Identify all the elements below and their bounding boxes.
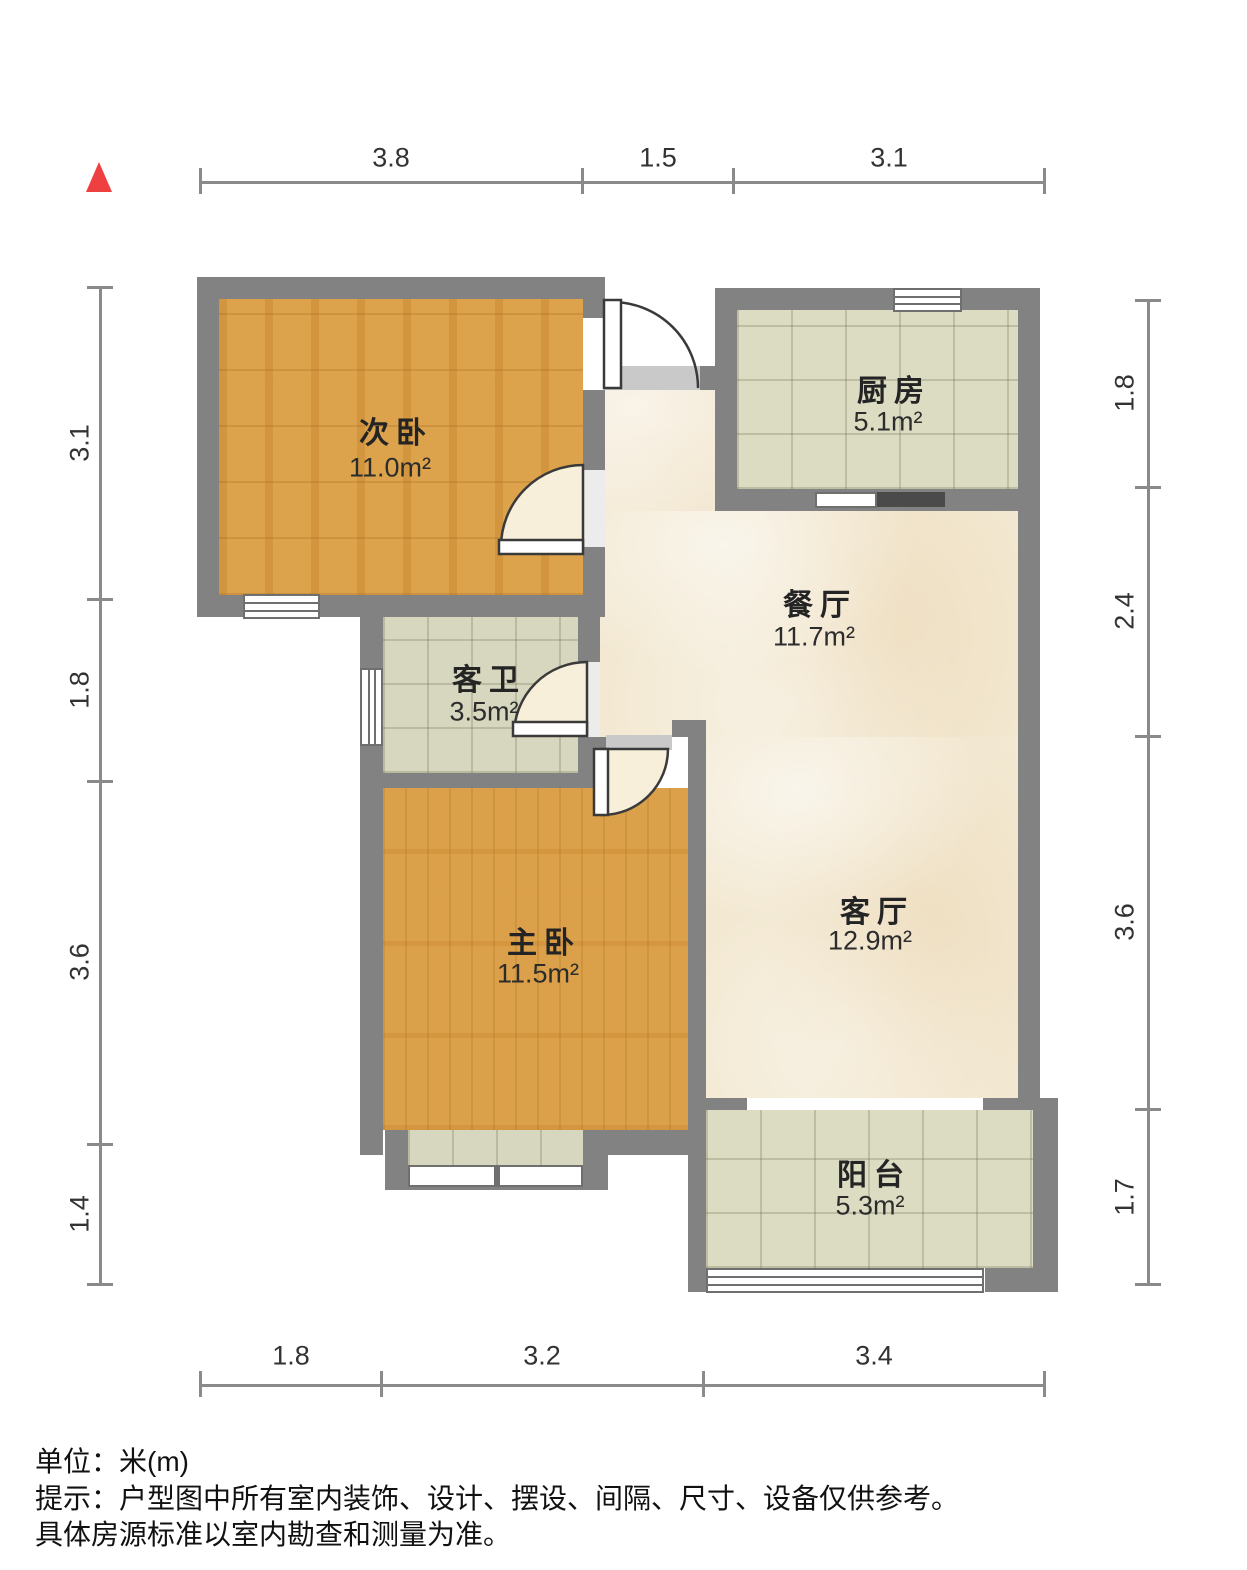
dim-tick [732,168,735,194]
master-bedroom-bay-window [408,1165,583,1187]
wall [583,1130,608,1190]
doorway-bathroom [578,662,600,737]
dim-tick [1135,299,1161,302]
footer-tip-line1: 提示：户型图中所有室内装饰、设计、摆设、间隔、尺寸、设备仅供参考。 [35,1477,959,1517]
room-label-dining: 餐厅 [783,580,857,624]
footer-unit-label: 单位：米(m) [35,1440,189,1480]
secondary-bedroom-window [243,594,320,619]
dim-tick [1135,1283,1161,1286]
dim-label: 3.6 [1110,903,1141,941]
bathroom-window [360,668,383,746]
wall [985,1268,1033,1292]
wall [583,277,605,318]
room-area-master-bedroom: 11.5m² [497,959,579,990]
dim-tick [199,168,202,194]
dim-label: 3.2 [523,1341,561,1372]
door-swings [0,0,1247,1570]
wall [672,720,706,737]
dim-label: 2.4 [1110,592,1141,630]
wall [578,595,600,662]
wall [583,390,605,472]
wall [606,1130,688,1155]
dim-label: 3.6 [65,943,96,981]
room-area-secondary-bedroom: 11.0m² [349,453,431,484]
north-arrow-icon [86,162,112,192]
kitchen-doorway-gap [877,492,945,507]
entry-threshold [604,366,700,390]
dim-tick [380,1371,383,1397]
wall [197,277,219,617]
dim-label: 3.8 [372,143,410,174]
wall [698,366,715,390]
dim-tick [87,1283,113,1286]
dim-line [1147,300,1150,1285]
wall [197,277,605,299]
dim-tick [1043,168,1046,194]
doorway-master-bedroom [606,735,672,750]
dim-tick [1135,1108,1161,1111]
room-label-kitchen: 厨房 [857,366,931,410]
wall [706,1098,747,1110]
room-label-balcony: 阳台 [837,1150,911,1194]
wall [385,1130,408,1190]
wall [1018,288,1040,1110]
footer-tip-line2: 具体房源标准以室内勘查和测量为准。 [35,1513,511,1553]
dim-tick [199,1371,202,1397]
wall [715,288,737,511]
dim-label: 1.8 [1110,374,1141,412]
floor-plan-canvas: 次卧 11.0m² 厨房 5.1m² 餐厅 11.7m² 客卫 3.5m² 主卧… [0,0,1247,1570]
room-label-bathroom: 客卫 [452,655,526,699]
wall [578,737,606,788]
wall [983,1098,1033,1110]
dim-line [200,181,1045,184]
dim-tick [87,286,113,289]
dim-label: 1.5 [639,143,677,174]
dim-tick [702,1371,705,1397]
wall [688,737,706,1292]
dim-label: 1.4 [65,1195,96,1233]
dim-tick [1135,735,1161,738]
room-label-living: 客厅 [840,887,914,931]
dim-tick [1043,1371,1046,1397]
balcony-window [706,1268,984,1293]
dim-label: 3.4 [855,1341,893,1372]
room-label-master-bedroom: 主卧 [507,918,581,962]
dim-tick [87,780,113,783]
room-area-balcony: 5.3m² [835,1191,904,1222]
dim-label: 1.7 [1110,1178,1141,1216]
room-area-bathroom: 3.5m² [449,697,518,728]
room-area-kitchen: 5.1m² [853,407,922,438]
dim-label: 1.8 [272,1341,310,1372]
floor-entry-hall [605,388,715,511]
dim-tick [87,1143,113,1146]
room-label-secondary-bedroom: 次卧 [359,408,433,452]
dim-label: 1.8 [65,671,96,709]
room-area-living: 12.9m² [828,926,912,957]
dim-tick [1135,486,1161,489]
wall [715,288,1040,310]
kitchen-doorway-sill [815,492,877,508]
bay-window-sill [408,1130,583,1167]
kitchen-window [893,288,962,312]
dim-line [200,1384,1045,1387]
dim-tick [581,168,584,194]
dim-label: 3.1 [65,424,96,462]
doorway-secondary-bedroom [583,470,605,547]
dim-tick [87,598,113,601]
wall [360,773,600,788]
dim-label: 3.1 [870,143,908,174]
dim-line [99,287,102,1285]
wall [1033,1098,1058,1292]
room-area-dining: 11.7m² [773,622,855,653]
